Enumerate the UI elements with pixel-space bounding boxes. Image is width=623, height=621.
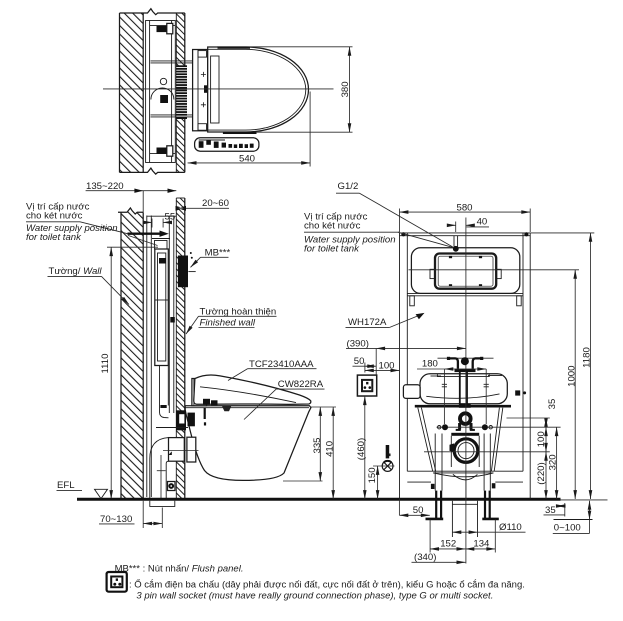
svg-text:135~220: 135~220 xyxy=(86,181,124,192)
svg-text:for toilet tank: for toilet tank xyxy=(304,244,360,255)
svg-text:: Ổ cắm điện ba chấu (dây phải: : Ổ cắm điện ba chấu (dây phải được nối … xyxy=(129,578,525,590)
svg-text:MB*** : Nút nhấn/ Flush panel.: MB*** : Nút nhấn/ Flush panel. xyxy=(115,564,244,575)
svg-text:Ø110: Ø110 xyxy=(499,522,522,533)
svg-text:50: 50 xyxy=(354,356,365,367)
svg-text:G1/2: G1/2 xyxy=(338,181,359,192)
svg-text:(340): (340) xyxy=(414,552,436,563)
svg-text:380: 380 xyxy=(340,81,351,97)
svg-text:20~60: 20~60 xyxy=(202,198,229,209)
svg-text:410: 410 xyxy=(325,441,336,457)
svg-text:100: 100 xyxy=(379,360,395,371)
svg-text:TCF23410AAA: TCF23410AAA xyxy=(249,359,314,370)
svg-text:580: 580 xyxy=(456,203,472,214)
svg-text:(460): (460) xyxy=(356,438,367,460)
svg-text:150: 150 xyxy=(367,467,378,483)
svg-text:100: 100 xyxy=(536,431,547,447)
svg-text:EFL: EFL xyxy=(57,480,75,491)
svg-text:3 pin wall socket (must have r: 3 pin wall socket (must have really grou… xyxy=(136,591,493,602)
svg-text:(220): (220) xyxy=(536,462,547,484)
svg-text:cho két nước: cho két nước xyxy=(26,211,83,222)
svg-text:Tường hoàn thiện: Tường hoàn thiện xyxy=(200,306,277,317)
svg-text:cho két nước: cho két nước xyxy=(304,221,361,232)
svg-text:35: 35 xyxy=(547,399,558,410)
svg-text:0~100: 0~100 xyxy=(554,523,581,534)
svg-text:(390): (390) xyxy=(347,338,369,349)
svg-text:180: 180 xyxy=(422,358,438,369)
svg-text:WH172A: WH172A xyxy=(348,317,387,328)
svg-text:35: 35 xyxy=(545,505,556,516)
svg-text:335: 335 xyxy=(312,437,323,453)
svg-text:134: 134 xyxy=(473,539,490,550)
svg-text:CW822RA: CW822RA xyxy=(278,379,324,390)
svg-text:for toilet tank: for toilet tank xyxy=(26,232,82,243)
svg-text:1000: 1000 xyxy=(566,366,577,387)
svg-text:70~130: 70~130 xyxy=(100,514,132,525)
svg-text:540: 540 xyxy=(239,153,255,164)
svg-text:55: 55 xyxy=(165,211,176,222)
svg-text:1180: 1180 xyxy=(582,347,593,368)
svg-text:1110: 1110 xyxy=(100,354,111,374)
svg-text:320: 320 xyxy=(547,454,558,470)
svg-text:Finished wall: Finished wall xyxy=(200,317,256,328)
svg-text:40: 40 xyxy=(477,217,488,228)
svg-text:Tường/ Wall: Tường/ Wall xyxy=(49,266,103,277)
svg-text:152: 152 xyxy=(440,539,456,550)
svg-text:50: 50 xyxy=(413,505,424,516)
